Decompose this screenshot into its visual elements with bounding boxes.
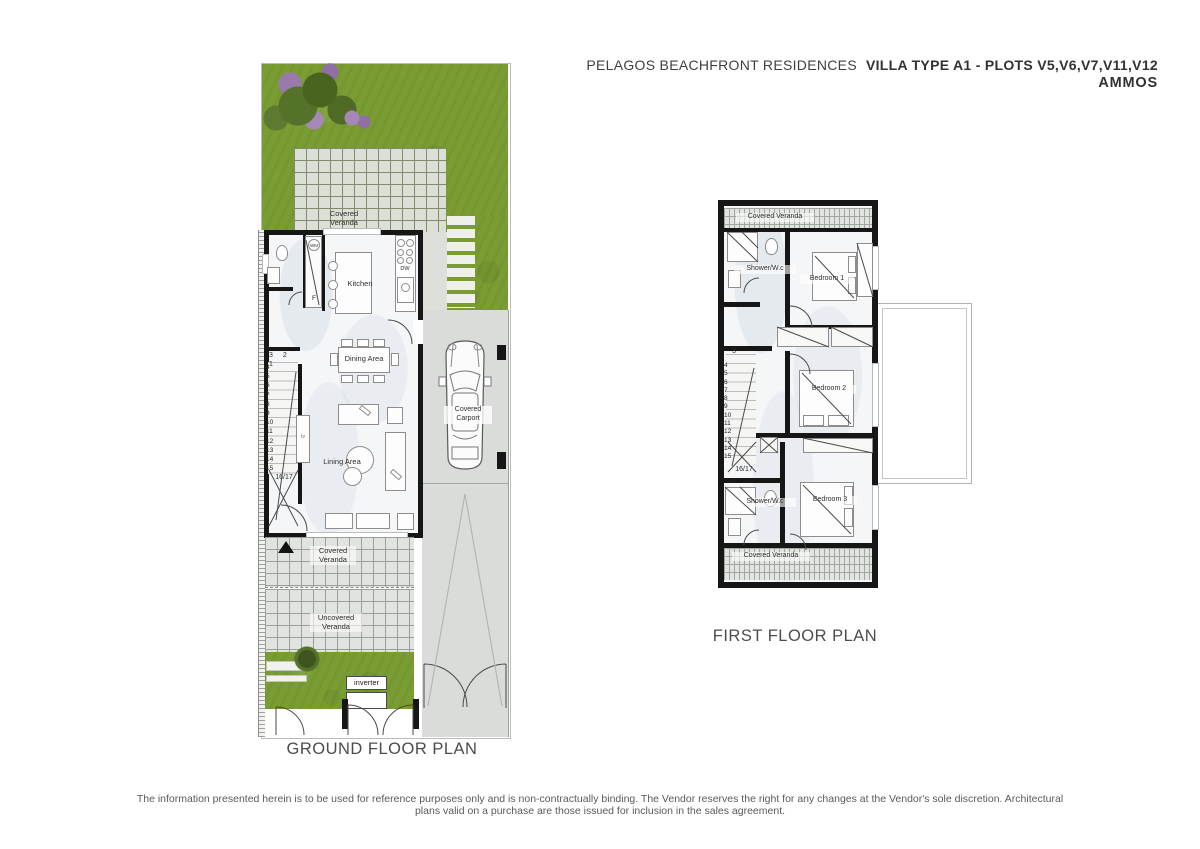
terrace-outline [877, 303, 972, 484]
hob-burner [397, 249, 404, 256]
hob-burner [397, 257, 404, 264]
garden-tree [258, 58, 372, 148]
first-floor-plan: Covered Veranda Covered Veranda Shower/W… [716, 196, 978, 596]
shower2-wall [724, 478, 782, 483]
stair-wall-top [264, 347, 300, 351]
carport-post-bottom [497, 452, 506, 469]
title-block: PELAGOS BEACHFRONT RESIDENCESVILLA TYPE … [586, 57, 1158, 91]
toilet [276, 245, 288, 261]
stair-numbers: 456789101112131415 [266, 363, 277, 473]
dining-chair [391, 353, 399, 366]
dining-chair [330, 353, 338, 366]
hob-burner [406, 249, 413, 256]
ff-covered-veranda-bottom-label: Covered Veranda [732, 552, 810, 561]
carport-label: Covered Carport [444, 406, 492, 424]
uncovered-veranda-label: Uncovered Veranda [310, 613, 362, 632]
pillow [848, 256, 856, 273]
low-table [397, 513, 414, 530]
garden-steps [447, 216, 475, 308]
fridge-label: F [308, 295, 320, 303]
pillow [828, 415, 849, 426]
ground-floor-plan: Covered Veranda Covered Carport [256, 58, 512, 742]
bedroom2-wall [785, 351, 790, 438]
washbasin [267, 267, 280, 284]
front-bush [294, 646, 321, 673]
first-floor-caption: FIRST FLOOR PLAN [685, 627, 905, 646]
disclaimer-line1: The information presented herein is to b… [0, 793, 1200, 805]
veranda-divider [265, 587, 414, 588]
toilet [765, 238, 778, 255]
pillow [803, 415, 824, 426]
chaise-sofa [385, 432, 406, 491]
dining-chair [341, 375, 353, 383]
ottoman [343, 467, 362, 486]
carport-post-top [497, 345, 506, 360]
bench-seat [325, 513, 353, 529]
bedroom1-wall [785, 230, 790, 326]
ground-floor-caption: GROUND FLOOR PLAN [272, 740, 492, 759]
north-arrow-icon [278, 541, 294, 553]
covered-veranda-top-label: Covered Veranda [322, 209, 366, 228]
wc-wall-bottom [269, 287, 293, 291]
closet-wall [322, 235, 325, 311]
side-table [387, 407, 403, 424]
ff-stair-top: 3 [728, 348, 740, 357]
stepping-stone [266, 675, 307, 682]
villa-type: VILLA TYPE A1 - PLOTS V5,V6,V7,V11,V12 [866, 57, 1158, 73]
bedroom1-window [872, 246, 879, 290]
bedroom2-label: Bedroom 2 [802, 385, 856, 394]
covered-veranda-bottom-label: Covered Veranda [310, 546, 356, 565]
sink-bowl [406, 239, 414, 247]
terrace-inner-line [882, 308, 967, 479]
skylight-shaft [760, 437, 778, 453]
shower1-wall [724, 302, 760, 307]
side-path [422, 232, 447, 320]
disclaimer: The information presented herein is to b… [0, 793, 1200, 817]
ff-covered-veranda-top-label: Covered Veranda [736, 213, 814, 222]
kitchen-side-door-opening [413, 320, 423, 344]
dining-chair [357, 375, 369, 383]
wardrobe [857, 243, 873, 297]
kitchen-window [323, 228, 381, 235]
bedroom2-window [872, 363, 879, 427]
ff-stair-numbers: 456789101112131415 [724, 362, 736, 462]
wardrobe [777, 327, 829, 347]
gate-post-left [342, 699, 348, 729]
wardrobe [831, 327, 873, 347]
dining-label: Dining Area [340, 354, 388, 363]
project-name: PELAGOS BEACHFRONT RESIDENCES [586, 57, 857, 73]
hob-burner [406, 257, 413, 264]
dining-chair [373, 375, 385, 383]
bedroom3-label: Bedroom 3 [803, 496, 857, 505]
oven-dial [401, 283, 410, 292]
living-label: Lining Area [318, 457, 366, 466]
bedroom3-wall [780, 442, 785, 548]
shower-tray [727, 232, 758, 262]
dishwasher-label: DW [396, 266, 414, 273]
covered-veranda-top [294, 148, 446, 232]
stool [328, 299, 338, 309]
brand-name: AMMOS [586, 75, 1158, 91]
dining-chair [341, 339, 353, 347]
wardrobe [803, 438, 873, 453]
bench-seat [356, 513, 390, 529]
kitchen-label: Kitchen [336, 279, 384, 288]
tv-label: tv [296, 434, 310, 441]
stool [328, 261, 338, 271]
inverter-unit [346, 692, 387, 709]
bedroom3-window [872, 485, 879, 530]
ff-stair-bottom: 16/17 [728, 466, 760, 475]
dining-chair [357, 339, 369, 347]
washing-machine: WM [308, 239, 320, 251]
flower-cluster [342, 108, 372, 130]
dining-chair [373, 339, 385, 347]
pillow [844, 508, 853, 527]
plan-sheet: PELAGOS BEACHFRONT RESIDENCESVILLA TYPE … [0, 0, 1200, 849]
gate-post-right [413, 699, 419, 729]
shower2-label: Shower/W.c [734, 498, 796, 507]
disclaimer-line2: plans valid on a purchase are those issu… [0, 805, 1200, 817]
shower1-label: Shower/W.c [734, 265, 796, 274]
title-line1: PELAGOS BEACHFRONT RESIDENCESVILLA TYPE … [586, 57, 1158, 73]
bedroom1-label: Bedroom 1 [800, 275, 854, 284]
carport-edge-line [422, 483, 509, 484]
inverter-label-box: inverter [346, 676, 387, 690]
stair-numbers-bottom: 16/17 [268, 474, 300, 483]
sink-bowl [397, 239, 405, 247]
washbasin [728, 518, 741, 536]
